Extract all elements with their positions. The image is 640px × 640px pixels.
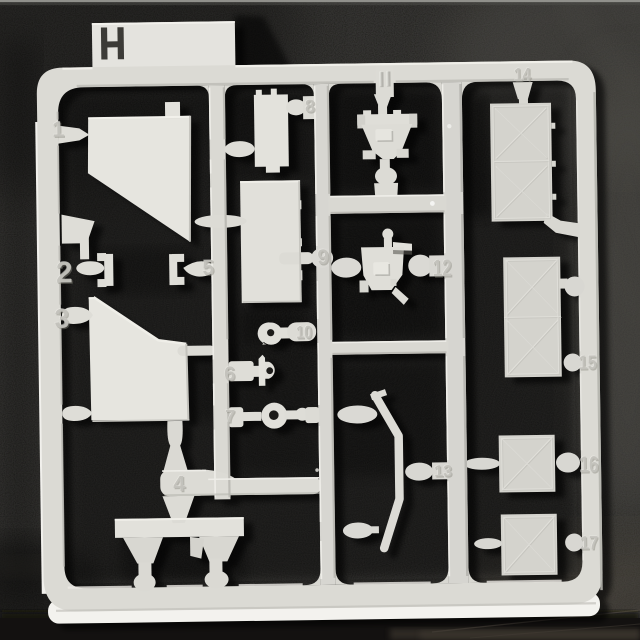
svg-text:6: 6 bbox=[224, 363, 235, 385]
svg-text:13: 13 bbox=[434, 463, 452, 480]
svg-text:12: 12 bbox=[433, 255, 452, 282]
svg-text:7: 7 bbox=[225, 406, 235, 426]
svg-text:17: 17 bbox=[580, 533, 598, 554]
svg-text:10: 10 bbox=[296, 322, 312, 342]
svg-text:8: 8 bbox=[305, 96, 315, 116]
svg-text:9: 9 bbox=[317, 246, 329, 269]
svg-text:15: 15 bbox=[578, 352, 596, 374]
svg-text:2: 2 bbox=[56, 256, 73, 289]
svg-text:3: 3 bbox=[54, 303, 69, 333]
svg-text:4: 4 bbox=[173, 471, 186, 496]
svg-text:16: 16 bbox=[579, 451, 598, 477]
svg-text:5: 5 bbox=[202, 256, 214, 279]
svg-text:14: 14 bbox=[514, 65, 532, 86]
svg-text:1: 1 bbox=[52, 117, 65, 142]
